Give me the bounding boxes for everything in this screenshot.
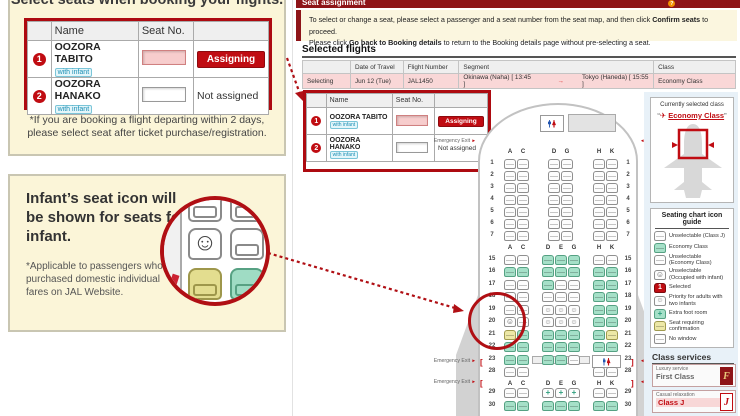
seat-23D[interactable] (542, 355, 554, 365)
seat-18E (555, 292, 567, 302)
segment-arrow-icon: → (558, 78, 564, 85)
seat-29A (504, 388, 516, 398)
seat-23A[interactable] (504, 355, 516, 365)
seat-7C (517, 231, 529, 241)
row-number-29: 29 (486, 389, 498, 395)
passenger-number-badge: 2 (311, 143, 321, 153)
legend-item: ☺Priority for adults withtwo infants (651, 294, 733, 307)
row-number-23: 23 (486, 356, 498, 362)
seat-5D (548, 207, 560, 217)
seat-20D: ☺ (542, 317, 554, 327)
row-number-28: 28 (486, 368, 498, 374)
selected-flights-heading: Selected flights (302, 44, 376, 55)
panel-divider (292, 0, 293, 416)
legend-xg-seat-icon: + (654, 309, 666, 319)
seat-5G (561, 207, 573, 217)
infant-occupied-seat-icon: ☺ (188, 228, 222, 260)
seat-20K[interactable] (606, 317, 618, 327)
seat-21E[interactable] (555, 330, 567, 340)
seat-30C[interactable] (517, 401, 529, 411)
seat-2A (504, 171, 516, 181)
magnifier-circle: ☺ (160, 196, 270, 306)
row-number-18: 18 (622, 293, 634, 299)
seat-19H[interactable] (593, 305, 605, 315)
seat-4D (548, 195, 560, 205)
seat-6H (593, 219, 605, 229)
column-letter: H (593, 381, 605, 387)
seat-4K (606, 195, 618, 205)
seat-3C (517, 183, 529, 193)
assigning-button[interactable]: Assigning (197, 51, 265, 68)
row-number-5: 5 (622, 208, 634, 214)
passenger-name: OOZORA TABITO (55, 41, 135, 65)
column-letter: K (606, 245, 618, 251)
seat-2C (517, 171, 529, 181)
seat-30G[interactable] (568, 401, 580, 411)
row-number-6: 6 (622, 220, 634, 226)
column-letter: A (504, 149, 516, 155)
confirmation-seat-icon (188, 268, 222, 300)
seat-icon (188, 196, 222, 222)
seat-assignment-page: Select seats when booking your flights. … (0, 0, 740, 416)
legend-y-seat-icon (654, 321, 666, 331)
fuselage: ACDGHKACDEGHKACHKACDEGHK1122334455667715… (478, 103, 638, 416)
seat-30K[interactable] (606, 401, 618, 411)
seat-7G (561, 231, 573, 241)
column-letter: E (555, 245, 567, 251)
seat-17D[interactable] (542, 280, 554, 290)
seat-6D (548, 219, 560, 229)
left-wing (456, 355, 478, 416)
row-number-15: 15 (486, 256, 498, 262)
legend-nw-seat-icon (654, 334, 666, 344)
seat-16A[interactable] (504, 267, 516, 277)
infant-face-icon: ☺ (193, 231, 218, 255)
seat-18K[interactable] (606, 292, 618, 302)
seat-2H (593, 171, 605, 181)
segment-to: Tokyo (Haneda) [ 15:55 ] (582, 74, 649, 88)
row-number-4: 4 (486, 196, 498, 202)
seat-7H (593, 231, 605, 241)
seat-29C (517, 388, 529, 398)
legend-item: Economy Class (651, 243, 733, 253)
seat-7D (548, 231, 560, 241)
with-infant-badge: with infant (55, 68, 93, 77)
seat-7K (606, 231, 618, 241)
seat-29D[interactable]: + (542, 388, 554, 398)
with-infant-badge: with infant (330, 121, 359, 129)
seat-22G[interactable] (568, 342, 580, 352)
seat-4G (561, 195, 573, 205)
seat-16D[interactable] (542, 267, 554, 277)
legend-items: Unselectable (Class J)Economy ClassUnsel… (651, 231, 733, 344)
seat-21K[interactable] (606, 330, 618, 340)
passenger-number-badge: 2 (33, 90, 46, 103)
how-to-use-link[interactable]: ?How to use this page (622, 0, 738, 7)
row-number-4: 4 (622, 196, 634, 202)
seat-17K[interactable] (606, 280, 618, 290)
seat-15D[interactable] (542, 255, 554, 265)
page-title: Seat assignment (302, 0, 366, 7)
legend-item: Seat requiringconfirmation (651, 320, 733, 333)
seat-16K[interactable] (606, 267, 618, 277)
row-number-22: 22 (622, 343, 634, 349)
seat-20E: ☺ (555, 317, 567, 327)
passenger-table-left: Name Seat No.1 OOZORA TABITO with infant… (27, 21, 269, 115)
column-letter: K (606, 381, 618, 387)
column-letter: C (517, 381, 529, 387)
plane-icon: ✈︎ (660, 111, 668, 120)
seat-6A (504, 219, 516, 229)
infant-seat-highlight-circle (468, 292, 526, 350)
seat-22D[interactable] (542, 342, 554, 352)
seat-21D[interactable] (542, 330, 554, 340)
seat-18C (517, 292, 529, 302)
seat-6C (517, 219, 529, 229)
seat-number-field[interactable] (142, 87, 186, 102)
seat-21H[interactable] (593, 330, 605, 340)
seat-icon (230, 196, 264, 222)
row-number-7: 7 (622, 232, 634, 238)
row-number-6: 6 (486, 220, 498, 226)
seat-1D (548, 159, 560, 169)
seat-15C (517, 255, 529, 265)
seat-3D (548, 183, 560, 193)
seat-5A (504, 207, 516, 217)
seat-17E (555, 280, 567, 290)
legend-sel-seat-icon: 1 (654, 283, 666, 293)
class-j-badge: J (720, 393, 733, 411)
column-letter: D (542, 381, 554, 387)
class-j-service[interactable]: Casual relaxation Class J J (652, 390, 736, 413)
legend-p-seat-icon: ☺ (654, 296, 666, 306)
emergency-exit-label-left: Emergency Exit ► (420, 138, 476, 144)
seat-28A (504, 367, 516, 377)
legend-item: No window (651, 334, 733, 344)
seat-16H[interactable] (593, 267, 605, 277)
booking-note-line1: *If you are booking a flight departing w… (10, 114, 284, 126)
legend-item: Unselectable (Class J) (651, 231, 733, 241)
legend-g-seat-icon (654, 243, 666, 253)
row-number-21: 21 (622, 331, 634, 337)
current-class-label: Currently selected class (651, 102, 733, 108)
seat-28H (593, 367, 605, 377)
male-icon (548, 120, 551, 128)
passenger-name: OOZORA HANAKO (330, 137, 389, 151)
column-letter: G (561, 149, 573, 155)
column-letter: H (593, 245, 605, 251)
exit-bracket: [ (480, 379, 483, 388)
seat-16C[interactable] (517, 267, 529, 277)
seat-icon (230, 228, 264, 260)
current-class-link[interactable]: “✈︎ Economy Class” (651, 111, 733, 120)
seat-2D (548, 171, 560, 181)
seat-23E[interactable] (555, 355, 567, 365)
info-box-booking-title: Select seats when booking your flights. (10, 0, 284, 8)
seat-30H[interactable] (593, 401, 605, 411)
column-letter: A (504, 245, 516, 251)
seat-22K[interactable] (606, 342, 618, 352)
seat-20G: ☺ (568, 317, 580, 327)
seat-5K (606, 207, 618, 217)
seat-15E[interactable] (555, 255, 567, 265)
row-number-5: 5 (486, 208, 498, 214)
column-letter: C (517, 149, 529, 155)
seat-15G[interactable] (568, 255, 580, 265)
exit-bracket: [ (480, 358, 483, 367)
exit-bracket: ] (631, 379, 634, 388)
seat-1C (517, 159, 529, 169)
passenger-number-badge: 1 (311, 116, 321, 126)
row-number-19: 19 (622, 306, 634, 312)
passenger-name: OOZORA HANAKO (55, 78, 135, 102)
heading-underline (302, 56, 736, 58)
current-class-box: Currently selected class “✈︎ Economy Cla… (650, 97, 734, 203)
seat-1K (606, 159, 618, 169)
selected-flights-table: Date of Travel Flight Number Segment Cla… (302, 60, 736, 89)
aircraft-silhouette (662, 124, 724, 198)
infant-note: *Applicable to passengers who purchased … (26, 260, 166, 299)
instruction-line1: To select or change a seat, please selec… (309, 14, 729, 37)
seat-3G (561, 183, 573, 193)
seat-15A (504, 255, 516, 265)
flight-row[interactable]: Selecting Jun 12 (Tue) JAL1450 Okinawa (… (303, 74, 736, 89)
row-number-29: 29 (622, 389, 634, 395)
legend-item: ☺Unselectable(Occupied with infant) (651, 268, 733, 281)
row-number-16: 16 (486, 268, 498, 274)
seat-15K (606, 255, 618, 265)
legend-item: Unselectable(Economy Class) (651, 254, 733, 267)
row-number-15: 15 (622, 256, 634, 262)
instruction-box: To select or change a seat, please selec… (296, 10, 737, 41)
legend-w-seat-icon (654, 255, 666, 265)
with-infant-badge: with infant (55, 105, 93, 114)
seat-number-field[interactable] (142, 50, 186, 65)
passenger-header-row: Name Seat No. (28, 22, 269, 41)
seat-23G (568, 355, 580, 365)
seat-3K (606, 183, 618, 193)
seat-19E: ☺ (555, 305, 567, 315)
seat-1H (593, 159, 605, 169)
female-icon (552, 120, 556, 128)
seat-16G[interactable] (568, 267, 580, 277)
seat-30A[interactable] (504, 401, 516, 411)
column-letter: K (606, 149, 618, 155)
seat-22C[interactable] (517, 342, 529, 352)
seat-17G (568, 280, 580, 290)
seat-17C (517, 280, 529, 290)
seat-4C (517, 195, 529, 205)
seat-19G: ☺ (568, 305, 580, 315)
row-number-17: 17 (486, 281, 498, 287)
seat-19K[interactable] (606, 305, 618, 315)
row-number-2: 2 (486, 172, 498, 178)
seat-29K (606, 388, 618, 398)
seat-3A (504, 183, 516, 193)
seat-3H (593, 183, 605, 193)
seat-2G (561, 171, 573, 181)
segment-from: Okinawa (Naha) [ 13:45 ] (463, 74, 531, 88)
seat-4A (504, 195, 516, 205)
flight-number: JAL1450 (403, 74, 459, 89)
passenger-table-highlight-left: Name Seat No.1 OOZORA TABITO with infant… (24, 18, 272, 110)
row-number-1: 1 (486, 160, 498, 166)
economy-seat-icon (230, 268, 264, 300)
flight-table-header: Date of Travel Flight Number Segment Cla… (303, 61, 736, 74)
emergency-exit-label-left: Emergency Exit ► (420, 358, 476, 364)
row-number-3: 3 (486, 184, 498, 190)
column-letter: H (593, 149, 605, 155)
column-letter: A (504, 381, 516, 387)
seat-17H[interactable] (593, 280, 605, 290)
seat-7A (504, 231, 516, 241)
seat-22E[interactable] (555, 342, 567, 352)
not-assigned-status: Not assigned (197, 90, 258, 102)
row-number-17: 17 (622, 281, 634, 287)
seat-29E[interactable]: + (555, 388, 567, 398)
row-number-30: 30 (486, 402, 498, 408)
row-number-2: 2 (622, 172, 634, 178)
seat-30D[interactable] (542, 401, 554, 411)
exit-bracket: ] (631, 358, 634, 367)
seat-4H (593, 195, 605, 205)
seat-20H[interactable] (593, 317, 605, 327)
legend-b-seat-icon: ☺ (654, 270, 666, 280)
legend-box: Seating chart icon guide Unselectable (C… (650, 208, 734, 348)
passenger-number-badge: 1 (33, 53, 46, 66)
row-number-28: 28 (622, 368, 634, 374)
seat-29H (593, 388, 605, 398)
seat-1A (504, 159, 516, 169)
first-class-badge: F (720, 367, 733, 385)
legend-item: +Extra foot room (651, 309, 733, 319)
row-number-3: 3 (622, 184, 634, 190)
seat-17A (504, 280, 516, 290)
seat-1G (561, 159, 573, 169)
seat-30E[interactable] (555, 401, 567, 411)
passenger-row[interactable]: 2 OOZORA HANAKO with infant Not assigned (28, 78, 269, 115)
row-number-30: 30 (622, 402, 634, 408)
seat-28K (606, 367, 618, 377)
seat-map: ACDGHKACDEGHKACHKACDEGHK1122334455667715… (420, 100, 680, 416)
seat-19D: ☺ (542, 305, 554, 315)
passenger-name: OOZORA TABITO (330, 114, 389, 121)
legend-item: 1Selected (651, 283, 733, 293)
seat-21G[interactable] (568, 330, 580, 340)
column-letter: E (555, 381, 567, 387)
seat-18D (542, 292, 554, 302)
seat-5C (517, 207, 529, 217)
column-letter: G (568, 381, 580, 387)
first-class-service[interactable]: Luxury service First Class F (652, 364, 736, 387)
seat-6G (561, 219, 573, 229)
column-letter: G (568, 245, 580, 251)
seat-23C[interactable] (517, 355, 529, 365)
row-number-20: 20 (622, 318, 634, 324)
flight-date: Jun 12 (Tue) (350, 74, 403, 89)
info-box-infant: Infant’s seat icon will be shown for sea… (8, 174, 286, 332)
column-letter: C (517, 245, 529, 251)
lavatory-icon (540, 115, 564, 132)
with-infant-badge: with infant (330, 151, 359, 159)
flight-status: Selecting (303, 74, 351, 89)
row-number-7: 7 (486, 232, 498, 238)
seat-5H (593, 207, 605, 217)
legend-title: Seating chart icon guide (655, 212, 729, 229)
emergency-exit-label-left: Emergency Exit ► (420, 379, 476, 385)
seat-16E[interactable] (555, 267, 567, 277)
legend-w-seat-icon (654, 231, 666, 241)
flight-class: Economy Class (654, 74, 736, 89)
seat-29G[interactable]: + (568, 388, 580, 398)
question-icon: ? (668, 0, 675, 7)
passenger-row[interactable]: 1 OOZORA TABITO with infant Assigning (28, 41, 269, 78)
row-number-1: 1 (622, 160, 634, 166)
booking-note-line2: please select seat after ticket purchase… (10, 127, 284, 139)
column-letter: D (542, 245, 554, 251)
seat-22H[interactable] (593, 342, 605, 352)
seat-28C (517, 367, 529, 377)
seat-2K (606, 171, 618, 181)
info-box-booking: Select seats when booking your flights. … (8, 0, 286, 156)
seat-18H[interactable] (593, 292, 605, 302)
seat-18G (568, 292, 580, 302)
row-number-16: 16 (622, 268, 634, 274)
column-letter: D (548, 149, 560, 155)
seat-15H (593, 255, 605, 265)
seat-6K (606, 219, 618, 229)
front-galley (568, 114, 616, 132)
